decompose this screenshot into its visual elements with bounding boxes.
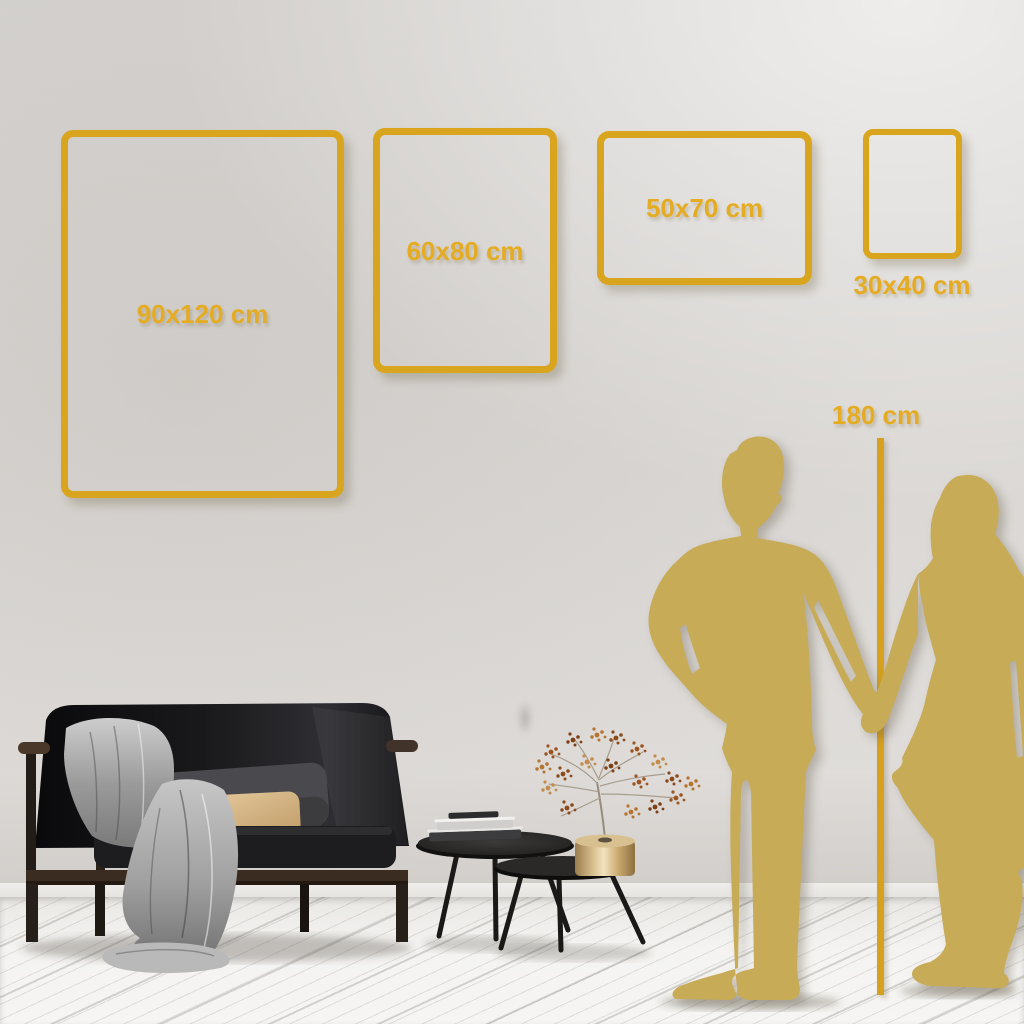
frame-90x120: 90x120 cm [61,130,344,498]
sofa-leg [26,884,38,942]
frame-50x70: 50x70 cm [597,131,812,285]
sofa-illustration [12,698,424,988]
table-floor-shadow [495,945,651,961]
height-marker-label: 180 cm [806,402,946,428]
sofa-arm-knob-left [18,742,50,754]
woman-silhouette [861,475,1024,988]
sofa-leg [396,884,408,942]
sofa-post-left [26,754,36,884]
frame-30x40-label: 30x40 cm [822,272,1002,298]
couple-silhouettes [640,428,1024,1012]
frame-50x70-label: 50x70 cm [646,195,763,221]
sofa-arm-knob-right [386,740,418,752]
sofa-leg [300,884,309,932]
brass-vase [575,835,635,877]
frame-30x40 [863,129,962,259]
frame-90x120-label: 90x120 cm [137,301,269,327]
book-stack [426,810,523,841]
man-silhouette [649,437,887,1001]
frame-60x80-label: 60x80 cm [406,238,523,264]
frame-60x80: 60x80 cm [373,128,557,373]
size-guide-scene: 90x120 cm 60x80 cm 50x70 cm 30x40 cm 180… [0,0,1024,1024]
sofa-leg [95,884,105,936]
